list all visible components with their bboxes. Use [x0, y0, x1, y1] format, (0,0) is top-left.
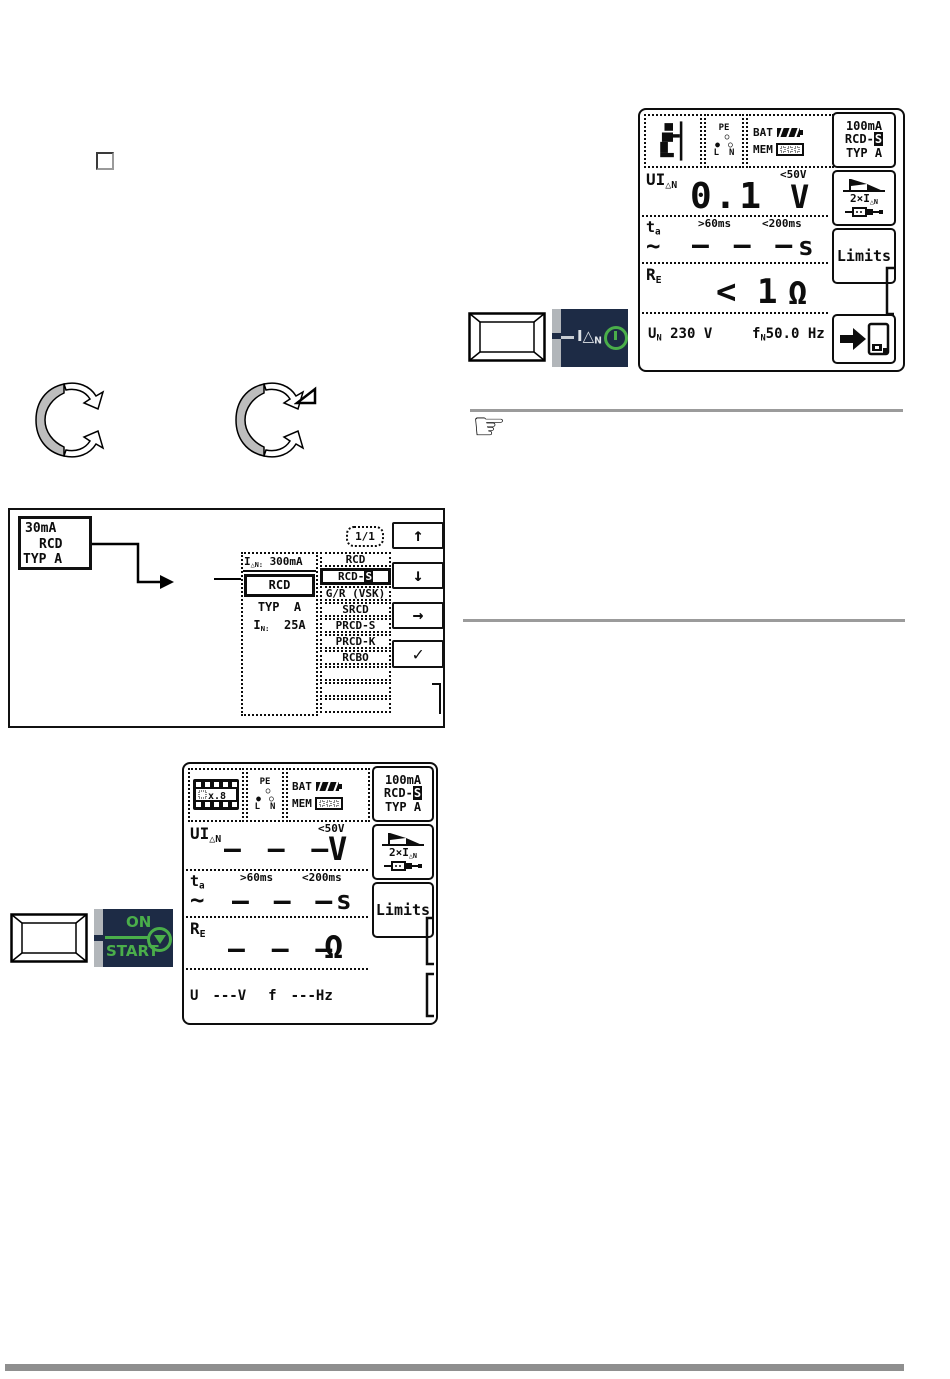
battery-memory-cell: BAT MEM: [746, 114, 834, 168]
softkey-down[interactable]: ↓: [392, 562, 444, 589]
idn-key-panel[interactable]: I△N: [552, 309, 628, 367]
down-arrow-icon: ↓: [413, 565, 424, 586]
rotary-triangle-icon: [294, 386, 318, 406]
lcd-display-2: x.8 PE ○ ● ○ L N BAT: [182, 762, 438, 1025]
type-option[interactable]: RCD: [320, 552, 391, 567]
wave-symbol: ~: [190, 886, 204, 914]
start-label: START: [106, 942, 159, 960]
bracket-icon: [424, 972, 436, 1018]
separator-rule-1: [470, 409, 903, 412]
type-option[interactable]: G/R (VSK): [320, 586, 391, 601]
re-row-value: < 1: [716, 272, 777, 312]
page-indicator: 1/1: [346, 526, 384, 547]
type-option[interactable]: [320, 698, 391, 713]
ta-limit-high: <200ms: [302, 871, 342, 884]
check-icon: ✓: [413, 644, 424, 665]
page-footer-bar: [5, 1364, 904, 1371]
trip-curve-flag-icon: [382, 832, 424, 847]
n-label: N: [729, 149, 734, 158]
l-label: L: [714, 149, 719, 158]
limits-label: Limits: [376, 902, 430, 919]
type-option[interactable]: PRCD-K: [320, 634, 391, 649]
device-key-icon[interactable]: [10, 913, 88, 963]
rotary-position-label: 30mA RCD TYP A: [18, 516, 92, 570]
softkey-up[interactable]: ↑: [392, 522, 444, 549]
film-strip-icon: x.8: [188, 768, 244, 822]
battery-icon: [776, 126, 804, 139]
ta-row-unit: s: [336, 886, 352, 916]
u-row-label: UI△N: [190, 824, 221, 845]
power-on-icon: [604, 326, 628, 350]
manual-page: PE ○ ● ○ L N BAT: [0, 0, 950, 1379]
range-line3: TYP A: [846, 147, 882, 160]
ta-row-unit: s: [798, 232, 814, 262]
u-row-unit: V: [790, 178, 809, 216]
right-arrow-icon: →: [413, 605, 424, 626]
ta-row-value: – – –: [692, 228, 796, 261]
on-start-key-panel[interactable]: ON START: [94, 909, 173, 967]
footer-un: UN 230 V: [648, 326, 712, 343]
socket-pe-ln-icon: PE ○ ● ○ L N: [704, 114, 744, 168]
wave-symbol: ~: [646, 232, 660, 260]
softkey-test-type[interactable]: 2×I△N: [832, 170, 896, 226]
re-row-value: – – –: [228, 932, 337, 965]
type-option[interactable]: [320, 682, 391, 697]
up-arrow-icon: ↑: [413, 525, 424, 546]
device-key-icon[interactable]: [468, 312, 546, 362]
memory-icon: [315, 797, 343, 810]
bat-label: BAT: [753, 126, 773, 139]
softkey-right[interactable]: →: [392, 602, 444, 629]
type-option[interactable]: PRCD-S: [320, 618, 391, 633]
rcd-type-menu-figure: 30mA RCD TYP A 1/1 I△N: 300mA RCD TYP A …: [8, 508, 445, 728]
re-row-unit: Ω: [324, 928, 343, 966]
person-at-pole-icon: [644, 114, 702, 168]
n-label: N: [270, 803, 275, 812]
battery-memory-cell: BAT MEM: [286, 768, 370, 822]
trip-curve-flag-icon: [843, 178, 885, 193]
socket-pe-ln-icon: PE ○ ● ○ L N: [246, 768, 284, 822]
arrow-to-disk-save-icon: [838, 322, 890, 356]
rotary-knob-icon[interactable]: [26, 378, 118, 462]
separator-rule-2: [463, 619, 905, 622]
ta-row-value: – – –: [232, 884, 336, 917]
softkey-save[interactable]: [832, 314, 896, 364]
u-row-value: 0.1: [690, 176, 764, 217]
range-line2: RCD-S: [384, 787, 422, 800]
bracket-icon: [884, 266, 896, 316]
rcd-params-panel: I△N: 300mA RCD TYP A IN: 25A: [241, 552, 318, 716]
checkbox-bullet: [96, 152, 114, 170]
l-label: L: [255, 803, 260, 812]
mem-label: MEM: [753, 143, 773, 156]
limits-label: Limits: [837, 248, 891, 265]
params-header: I△N: 300mA: [243, 554, 316, 572]
in-line: IN: 25A: [243, 618, 316, 633]
lcd-display-1: PE ○ ● ○ L N BAT: [638, 108, 905, 372]
type-option[interactable]: SRCD: [320, 602, 391, 617]
typ-line: TYP A: [243, 600, 316, 614]
footer-voltage-frequency: U ---V f ---Hz: [190, 988, 333, 1004]
type-option[interactable]: [320, 666, 391, 681]
bracket-icon: [431, 682, 443, 716]
svg-text:x.8: x.8: [208, 791, 226, 802]
memory-icon: [776, 143, 804, 156]
bat-label: BAT: [292, 780, 312, 793]
on-label: ON: [126, 913, 151, 931]
u-row-value: – – –: [224, 832, 333, 865]
re-row-label: RE: [190, 919, 206, 940]
test-label: 2×I△N: [850, 193, 878, 206]
softkey-range[interactable]: 100mA RCD-S TYP A: [372, 766, 434, 822]
type-option-selected[interactable]: RCD-S: [320, 568, 391, 585]
rcd-type-list: RCD RCD-S G/R (VSK) SRCD PRCD-S PRCD-K R…: [320, 552, 391, 714]
bracket-icon: [424, 916, 436, 966]
softkey-confirm[interactable]: ✓: [392, 640, 444, 668]
test-label: 2×I△N: [389, 847, 417, 860]
re-row-unit: Ω: [788, 274, 807, 312]
range-line3: TYP A: [385, 801, 421, 814]
u-row-label: UI△N: [646, 170, 677, 191]
idn-key-label: I△N: [577, 327, 602, 347]
plug-adapter-icon: [384, 860, 422, 872]
plug-adapter-icon: [845, 206, 883, 218]
selected-category: RCD: [244, 574, 315, 597]
u-row-unit: V: [328, 830, 347, 868]
softkey-test-type[interactable]: 2×I△N: [372, 824, 434, 880]
ta-limit-low: >60ms: [240, 871, 273, 884]
range-line2: RCD-S: [845, 133, 883, 146]
battery-icon: [315, 780, 343, 793]
softkey-range[interactable]: 100mA RCD-S TYP A: [832, 112, 896, 168]
footer-fn: fN50.0 Hz: [752, 326, 825, 343]
re-row-label: RE: [646, 265, 662, 286]
mem-label: MEM: [292, 797, 312, 810]
pointing-hand-icon: ☞: [472, 404, 506, 448]
type-option[interactable]: RCBO: [320, 650, 391, 665]
